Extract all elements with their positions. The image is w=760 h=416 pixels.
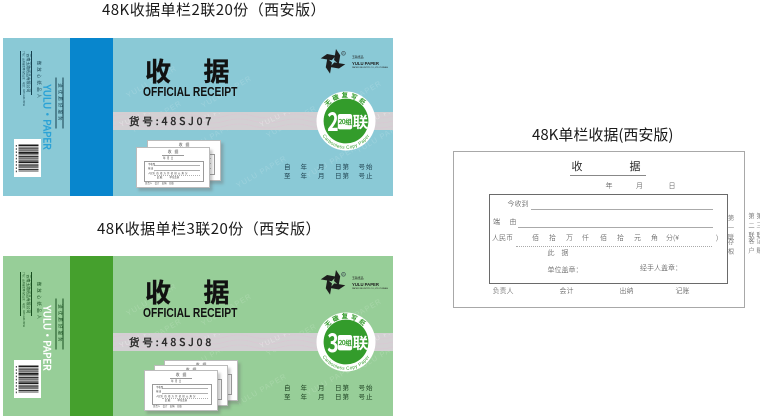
- svg-text:20组: 20组: [338, 336, 352, 346]
- svg-text:联: 联: [352, 331, 368, 353]
- svg-text:YULU PAPER: YULU PAPER: [235, 371, 289, 407]
- svg-text:20组: 20组: [338, 115, 352, 125]
- svg-text:YULU PAPER: YULU PAPER: [259, 113, 311, 129]
- svg-text:3: 3: [327, 321, 338, 360]
- svg-text:联: 联: [352, 110, 368, 132]
- svg-text:YULU PAPER: YULU PAPER: [235, 153, 289, 189]
- svg-text:YULU PAPER: YULU PAPER: [259, 334, 311, 350]
- svg-text:2: 2: [327, 100, 338, 139]
